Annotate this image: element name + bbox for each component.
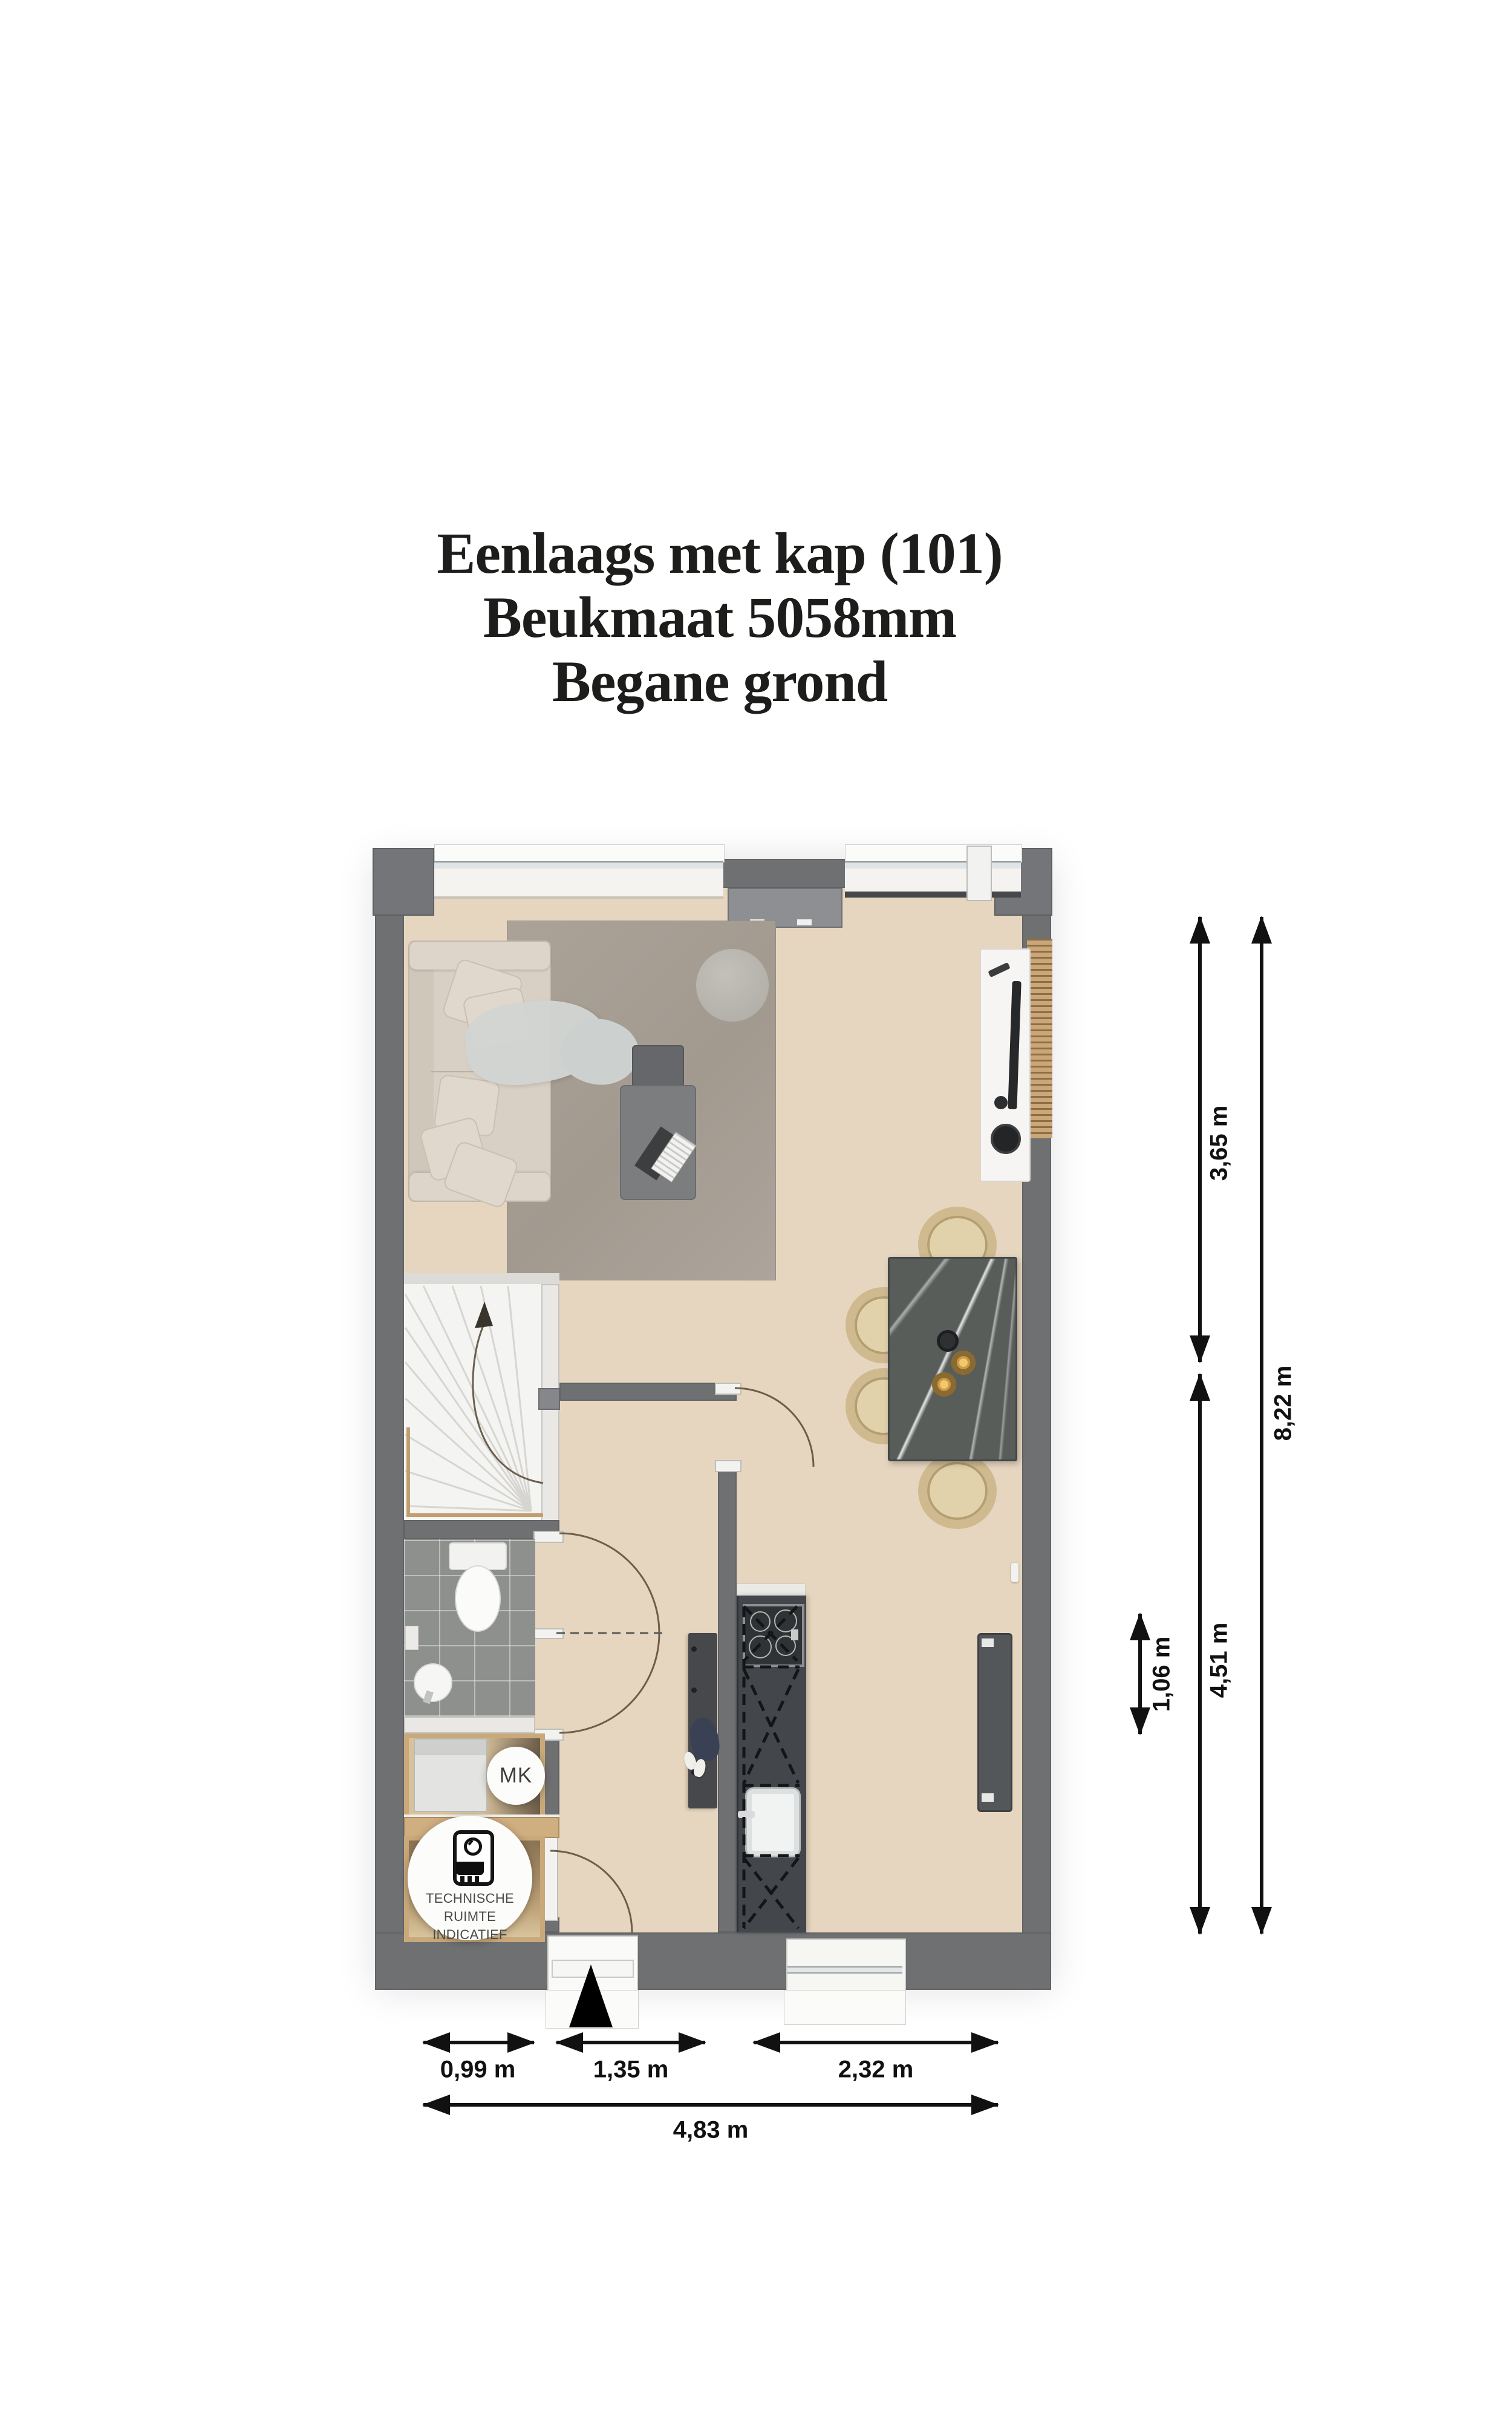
door-jamb <box>533 1628 564 1639</box>
tv-screen <box>1008 981 1021 1109</box>
stair-railing-wall <box>541 1284 559 1536</box>
toilet-basin <box>414 1663 452 1702</box>
hall-wall-vertical <box>718 1467 737 1932</box>
dim-bottom-0-99: 0,99 m <box>440 2056 516 2084</box>
title-line-3: Begane grond <box>272 650 1167 714</box>
front-door-leaf <box>552 1960 634 1978</box>
dim-vertical-8-22: 8,22 m <box>1270 1366 1297 1441</box>
dim-bottom-1-35: 1,35 m <box>593 2056 669 2084</box>
coat-hook <box>691 1646 697 1652</box>
front-door-frame <box>547 1935 638 1992</box>
cooktop <box>743 1604 804 1667</box>
front-door-stoop <box>546 1990 639 2029</box>
window-mullion <box>966 846 992 901</box>
meter-cupboard-badge: MK <box>487 1747 545 1805</box>
table-candle <box>951 1351 976 1375</box>
technical-room-label: TECHNISCHE RUIMTE INDICATIEF <box>408 1889 532 1944</box>
coffee-table <box>620 1085 696 1200</box>
window-top-left <box>434 844 725 907</box>
slat-wall-panel <box>1027 939 1052 1138</box>
burner <box>749 1635 772 1658</box>
kitchen-sink <box>745 1787 801 1857</box>
dim-bottom-4-83: 4,83 m <box>673 2117 749 2144</box>
dining-chair <box>918 1453 997 1529</box>
kitchen-counter-cap <box>737 1583 806 1597</box>
wall-left <box>375 859 404 1990</box>
dim-vertical-1-06: 1,06 m <box>1149 1637 1176 1712</box>
toilet-storage-wall <box>404 1717 535 1733</box>
toilet-bowl <box>455 1565 501 1632</box>
thermostat <box>1011 1563 1018 1582</box>
door-jamb <box>715 1460 741 1472</box>
corner-top-left <box>373 848 434 916</box>
decor-bowl-large <box>991 1124 1021 1154</box>
dining-table <box>888 1257 1017 1461</box>
stair-newel-post <box>538 1388 560 1410</box>
hall-top-wall <box>559 1383 737 1401</box>
title-line-2: Beukmaat 5058mm <box>272 585 1167 650</box>
dim-vertical-3-65: 3,65 m <box>1206 1106 1233 1181</box>
toilet-paper-holder <box>405 1626 419 1650</box>
page-title: Eenlaags met kap (101) Beukmaat 5058mm B… <box>272 521 1167 714</box>
dim-bottom-2-32: 2,32 m <box>838 2056 914 2084</box>
technical-room-badge: TECHNISCHE RUIMTE INDICATIEF <box>408 1816 532 1940</box>
burner <box>750 1611 771 1632</box>
decor-bowl-small <box>994 1096 1008 1109</box>
meter-cupboard-label: MK <box>487 1747 545 1805</box>
door-jamb <box>715 1383 741 1395</box>
table-candle <box>932 1372 956 1397</box>
pouf <box>696 948 769 1022</box>
door-jamb <box>533 1531 564 1543</box>
title-line-1: Eenlaags met kap (101) <box>272 521 1167 585</box>
window-top-right <box>845 844 1022 907</box>
tv-remote <box>988 962 1010 977</box>
stairs <box>404 1284 541 1520</box>
washing-machine <box>414 1738 487 1812</box>
floorplan-page: Eenlaags met kap (101) Beukmaat 5058mm B… <box>0 0 1512 2429</box>
cooktop-controls <box>791 1629 798 1640</box>
tv-sideboard <box>980 948 1031 1182</box>
boiler-icon <box>453 1830 494 1886</box>
dim-vertical-4-51: 4,51 m <box>1206 1623 1233 1698</box>
side-table <box>632 1045 684 1087</box>
coat-hook <box>691 1687 697 1693</box>
window-bottom <box>786 1938 906 1992</box>
radiator <box>977 1633 1012 1812</box>
basin-tap <box>423 1691 434 1704</box>
sink-faucet <box>738 1811 755 1818</box>
table-bowl <box>937 1330 959 1352</box>
vent-handle-right <box>797 919 812 925</box>
window-bottom-stoop <box>784 1990 906 2025</box>
